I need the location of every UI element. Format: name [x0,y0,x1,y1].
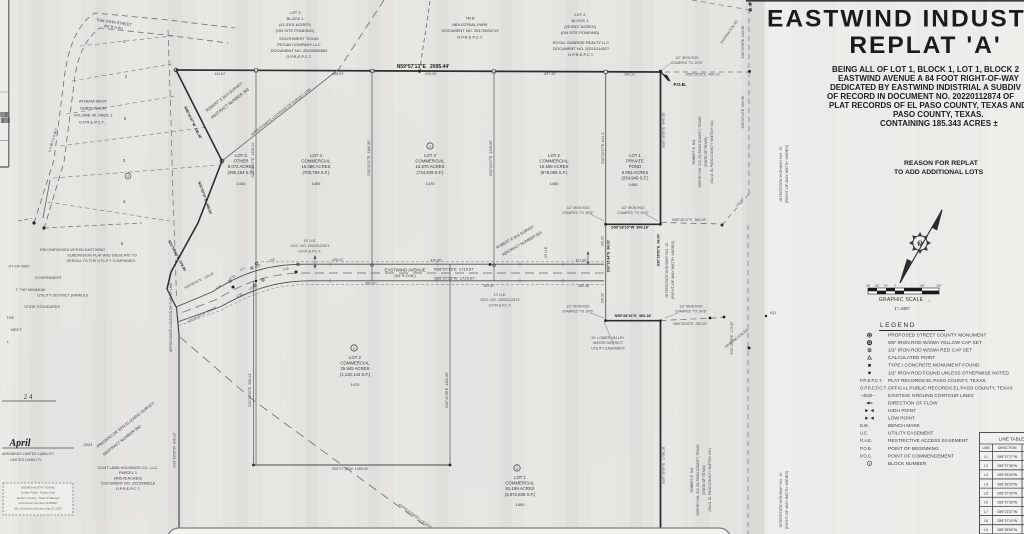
svg-text:LOT 3: LOT 3 [289,10,301,15]
svg-text:POINT OF COMMENCEMENT: POINT OF COMMENCEMENT [888,453,954,459]
svg-text:479.46': 479.46' [430,258,441,262]
svg-text:LOT 1: LOT 1 [514,475,526,480]
svg-text:SUBDIVISION: SUBDIVISION [80,106,106,111]
svg-text:S59°27'27"W: S59°27'27"W [997,455,1018,459]
svg-text:HT-OF-WAY.: HT-OF-WAY. [9,265,30,269]
svg-text:VOLUME 40, PAGE 1: VOLUME 40, PAGE 1 [74,113,114,118]
svg-text:100': 100' [919,284,925,288]
svg-text:REPLAT 'A': REPLAT 'A' [849,32,1001,59]
svg-text:(39.0007 ACRES): (39.0007 ACRES) [564,24,596,29]
svg-text:150': 150' [874,284,880,288]
svg-text:STAMPED "TX 1976": STAMPED "TX 1976" [671,61,703,65]
svg-text:STAMPED "TX 1976": STAMPED "TX 1976" [562,211,594,215]
svg-text:S30°31'44"E 84.00': S30°31'44"E 84.00' [607,240,611,273]
svg-text:952.91': 952.91' [483,284,494,288]
svg-text:(395,194 S.F.): (395,194 S.F.) [228,170,256,175]
svg-text:P.O.B.: P.O.B. [860,446,872,451]
svg-text:PASO COUNTY, TEXAS.: PASO COUNTY, TEXAS. [893,110,984,119]
svg-text:LINE: LINE [982,446,990,450]
svg-text:DOCUMENT NO. 20210114527: DOCUMENT NO. 20210114527 [553,46,610,51]
svg-text:S30°32'47"E 1245.85': S30°32'47"E 1245.85' [489,140,493,176]
svg-text:SUBDIVISION PLAT AND DEDICATE: SUBDIVISION PLAT AND DEDICATE TO [67,254,137,258]
svg-text:O.P.R.E.P.C.T.: O.P.R.E.P.C.T. [298,249,321,253]
svg-text:L6: L6 [984,501,988,505]
svg-text:LOT 2: LOT 2 [574,12,586,17]
svg-text:CONTAINING 185.343 ACRES ±: CONTAINING 185.343 ACRES ± [880,119,998,128]
svg-text:HEREAL TO THE UTILITY COMPANIE: HEREAL TO THE UTILITY COMPANIES [66,259,135,263]
svg-text:S30°32'47"E 844.2': S30°32'47"E 844.2' [601,132,605,164]
svg-text:BLOCK 1: BLOCK 1 [572,18,590,23]
svg-text:INDUSTRIAL PARK: INDUSTRIAL PARK [452,22,488,27]
svg-text:LOT 2: LOT 2 [548,153,560,158]
svg-text:1/2" IRON ROD: 1/2" IRON ROD [679,305,703,309]
svg-text:U.E.: U.E. [860,431,868,436]
svg-text:STAMPED "TX 1976": STAMPED "TX 1976" [617,211,649,215]
svg-text:1/2" IRON ROD: 1/2" IRON ROD [566,305,590,309]
svg-text:(734,949 S.F.): (734,949 S.F.) [417,170,445,175]
svg-text:S59°28'59"W: S59°28'59"W [997,528,1018,532]
svg-text:P.R.E.P.C.T.: P.R.E.P.C.T. [860,378,882,383]
svg-text:THE: THE [6,316,14,320]
svg-text:LOT 4: LOT 4 [310,153,322,158]
svg-text:INTERSTATE HIGHWAY NO. 10: INTERSTATE HIGHWAY NO. 10 [665,243,669,298]
svg-text:UTILITY EASEMENT: UTILITY EASEMENT [591,346,626,350]
svg-text:STATE STANDARDS: STATE STANDARDS [24,305,60,309]
svg-text:BENCH MARK: BENCH MARK [888,423,921,429]
svg-text:(679,088 S.F.): (679,088 S.F.) [541,170,569,175]
svg-text:N59°25'02"E 250.02': N59°25'02"E 250.02' [673,322,707,326]
svg-text:ATHENA WEST: ATHENA WEST [79,99,108,104]
svg-text:COMMERCIAL: COMMERCIAL [505,481,535,486]
svg-text:L1: L1 [984,455,988,459]
svg-text:GOVERNMENT: GOVERNMENT [35,276,63,280]
svg-text:N59°26'47"E 350.29': N59°26'47"E 350.29' [672,218,706,222]
svg-text:20' U.E.: 20' U.E. [544,246,548,259]
svg-text:LOW POINT: LOW POINT [888,416,915,422]
svg-text:UTILITY EASEMENT: UTILITY EASEMENT [888,431,934,437]
svg-text:91.199 ACRES: 91.199 ACRES [506,486,535,491]
svg-text:852.81': 852.81' [365,282,376,286]
svg-text:SURVEY NO. 302, EL PASO COUNTY: SURVEY NO. 302, EL PASO COUNTY, TEXAS [696,444,700,516]
svg-text:CALCULATED POINT: CALCULATED POINT [888,355,935,361]
svg-text:(3,972,639 S.F.): (3,972,639 S.F.) [505,492,536,497]
svg-text:(ON SITE PONDING): (ON SITE PONDING) [276,28,315,33]
svg-text:S30°32'47"E 1180.35': S30°32'47"E 1180.35' [367,140,371,176]
svg-text:ROBERT E. N/A: ROBERT E. N/A [690,467,694,492]
svg-text:INTERSTATE HIGHWAY NO. 10: INTERSTATE HIGHWAY NO. 10 [779,473,783,528]
svg-text:S30°19'05"E 243.38': S30°19'05"E 243.38' [741,25,745,58]
svg-text:L2: L2 [984,464,988,468]
svg-text:15.589 ACRES: 15.589 ACRES [540,164,569,169]
svg-text:PECAN COMPANY LLC: PECAN COMPANY LLC [277,42,320,47]
svg-text:ANDREA AUSTIN TOWNS: ANDREA AUSTIN TOWNS [21,486,55,490]
svg-text:My Commission Expires Aug 22,: My Commission Expires Aug 22, 2023 [14,506,62,510]
svg-text:421.46': 421.46' [575,258,586,262]
svg-text:S59°28'15"W 300.18': S59°28'15"W 300.18' [611,226,649,230]
svg-text:ENCOMPASSED WITHIN EASTWIND: ENCOMPASSED WITHIN EASTWIND [40,248,105,252]
svg-text:ROBERT E. N/A: ROBERT E. N/A [692,139,696,164]
svg-text:L5: L5 [984,492,988,496]
svg-text:GRAPHIC SCALE: GRAPHIC SCALE [879,297,924,303]
svg-text:INTERSTATE HIGHWAY NO. 10: INTERSTATE HIGHWAY NO. 10 [779,147,783,202]
svg-text:LOT 3: LOT 3 [424,153,436,158]
svg-text:O.P.R.E.P.C.T.: O.P.R.E.P.C.T. [457,34,483,39]
svg-text:PLAT RECORDS OF EL PASO COUNTY: PLAT RECORDS OF EL PASO COUNTY, TEXAS AN… [829,101,1024,110]
svg-text:(STATE OF TEXAS): (STATE OF TEXAS) [702,465,706,495]
svg-text:1/2" IRON ROD: 1/2" IRON ROD [675,56,699,60]
svg-text:MEET,: MEET, [11,328,22,332]
svg-text:N59°27'13"E 1715.07': N59°27'13"E 1715.07' [434,267,474,272]
svg-text:2 4: 2 4 [24,393,33,401]
svg-text:443.67': 443.67' [214,72,226,76]
svg-text:1455: 1455 [550,181,560,186]
svg-text:POND: POND [629,164,641,169]
svg-text:OTHER: OTHER [233,159,248,164]
svg-text:PARCEL 1: PARCEL 1 [119,471,137,475]
svg-text:(SLLO. EL PASO COUNTY SKETCH #: (SLLO. EL PASO COUNTY SKETCH #40) [710,120,714,183]
svg-text:O.P.R.E.P.C.T.: O.P.R.E.P.C.T. [488,303,511,307]
svg-text:1470: 1470 [351,382,361,387]
svg-text:1/2" IRON ROD W/2WA RED CAP SE: 1/2" IRON ROD W/2WA RED CAP SET [888,348,972,354]
svg-text:TR-B: TR-B [465,16,475,21]
svg-text:S59°37'50"W: S59°37'50"W [997,492,1018,496]
svg-text:627.46': 627.46' [544,72,556,76]
svg-text:1455: 1455 [237,181,247,186]
svg-text:STAMPED "TX 1976": STAMPED "TX 1976" [562,310,594,314]
svg-text:N59°28'16"E 300.18': N59°28'16"E 300.18' [615,314,652,318]
svg-text:16.870 ACRES: 16.870 ACRES [416,164,445,169]
svg-text:LEGEND: LEGEND [880,322,916,329]
svg-text:25.945 ACRES: 25.945 ACRES [341,366,370,371]
svg-text:UTILITY DISTRICT (HRWUD): UTILITY DISTRICT (HRWUD) [37,294,88,298]
svg-text:STAMPED "TX 1976": STAMPED "TX 1976" [675,310,707,314]
svg-text:T, THE MINIMUM: T, THE MINIMUM [15,288,45,292]
svg-text:L3: L3 [984,473,988,477]
svg-text:(41.5101 ACRES): (41.5101 ACRES) [279,22,311,27]
svg-text:TYPE I CONCRETE MONUMENT FOUND: TYPE I CONCRETE MONUMENT FOUND [888,363,980,369]
svg-text:--4020--: --4020-- [860,393,875,398]
svg-text:S59°27'13"W 1715.07': S59°27'13"W 1715.07' [434,275,475,280]
svg-text:1490: 1490 [516,502,526,507]
svg-text:16.086 ACRES: 16.086 ACRES [302,164,331,169]
svg-text:(RIGHT-OF-WAY WIDTH VARIES): (RIGHT-OF-WAY WIDTH VARIES) [785,470,789,529]
svg-text:OF RECORD IN DOCUMENT NO. 2022: OF RECORD IN DOCUMENT NO. 20220112874 OF [827,92,1014,101]
svg-text:TO ADD ADDITIONAL LOTS: TO ADD ADDITIONAL LOTS [894,169,984,176]
svg-text:1/2" IRON ROD FOUND UNLESS OTH: 1/2" IRON ROD FOUND UNLESS OTHERWISE NOT… [888,370,1010,376]
svg-text:S30°18'50"E 849.35': S30°18'50"E 849.35' [662,112,666,148]
svg-text:LINE TABLE: LINE TABLE [999,437,1024,442]
svg-text:O.P.R.E.P.C.T.: O.P.R.E.P.C.T. [116,487,140,491]
svg-text:R.A.E.: R.A.E. [860,438,872,443]
svg-text:L8: L8 [984,519,988,523]
svg-text:862.46': 862.46' [578,284,589,288]
svg-text:COMMERCIAL: COMMERCIAL [539,159,569,164]
svg-text:9.072 ACRES: 9.072 ACRES [228,164,255,169]
svg-text:APPROXIMATE LOCATION OF SURVEY: APPROXIMATE LOCATION OF SURVEY LINE [169,282,173,352]
svg-text:233.32': 233.32' [601,292,605,303]
svg-text:4: 4 [127,175,129,179]
svg-text:L4: L4 [984,482,988,486]
svg-text:EXISTING GROUND CONTOUR LINES: EXISTING GROUND CONTOUR LINES [888,393,974,399]
svg-text:645.00': 645.00' [332,72,344,76]
svg-text:EASTWIND AVENUE A 84 FOOT RIGH: EASTWIND AVENUE A 84 FOOT RIGHT-OF-WAY [838,74,1020,83]
svg-text:S59°27'10"W: S59°27'10"W [997,519,1018,523]
svg-text:2: 2 [353,347,355,351]
svg-text:1475: 1475 [426,181,436,186]
svg-text:O.P.R.E.P.C.T.: O.P.R.E.P.C.T. [286,54,312,59]
svg-text:DOCUMENT NO. 20170005719: DOCUMENT NO. 20170005719 [442,28,500,33]
svg-text:P.O.C.: P.O.C. [860,453,872,458]
svg-text:WATER DISTRICT: WATER DISTRICT [593,341,624,345]
svg-text:S59°28'09"W: S59°28'09"W [997,473,1018,477]
svg-text:PRIVATE: PRIVATE [626,159,644,164]
svg-text:P.O.B.: P.O.B. [674,82,687,87]
svg-text:L.: L. [7,340,10,344]
svg-text:(STATE OF TEXAS): (STATE OF TEXAS) [704,137,708,167]
svg-text:BLOCK 1: BLOCK 1 [287,16,305,21]
svg-text:10' U.E.: 10' U.E. [494,293,507,297]
svg-text:DEDICATED BY EASTWIND INDISTRI: DEDICATED BY EASTWIND INDISTRIAL A SUBDI… [830,83,1022,92]
svg-text:300.31': 300.31' [624,73,636,77]
svg-text:1/2" IRON ROD: 1/2" IRON ROD [566,206,590,210]
svg-text:50': 50' [884,284,888,288]
svg-text:(406.46 ACRES): (406.46 ACRES) [114,476,143,480]
svg-text:COMMERCIAL: COMMERCIAL [340,361,370,366]
svg-text:PLAT RECORDS EL PASO COUNTY, T: PLAT RECORDS EL PASO COUNTY, TEXAS [888,378,985,384]
svg-text:CLINT LAND HOLDINGS CO., LLC.: CLINT LAND HOLDINGS CO., LLC. [98,466,159,470]
svg-text:Commission Number 21485967: Commission Number 21485967 [18,501,58,505]
svg-text:Notary Public - Notary Seal: Notary Public - Notary Seal [21,491,55,495]
svg-text:N: N [918,242,922,248]
svg-text:DIRECTION: DIRECTION [998,446,1017,450]
svg-text:LOT 2: LOT 2 [349,355,361,360]
svg-text:BLOCK NUMBER: BLOCK NUMBER [888,461,927,467]
svg-text:DOCUMENT NO. 20200055854: DOCUMENT NO. 20200055854 [271,48,329,53]
svg-text:COMMERCIAL: COMMERCIAL [301,159,331,164]
svg-text:HIGH POINT: HIGH POINT [888,408,916,414]
svg-text:2: 2 [516,467,518,471]
svg-text:5.853 ACRES: 5.853 ACRES [622,170,649,175]
svg-text:S59°27'13"W 1085.00': S59°27'13"W 1085.00' [332,467,369,471]
svg-text:1"=200’: 1"=200’ [894,306,910,311]
svg-text:M§1: M§1 [770,311,776,315]
svg-text:DIRECTION OF FLOW: DIRECTION OF FLOW [888,400,938,406]
svg-text:EASTWIND AVENUE: EASTWIND AVENUE [385,268,426,273]
svg-text:20' LOWER VALLEY: 20' LOWER VALLEY [591,336,625,340]
svg-text:5/8" IRON ROD W/2WA YELLOW CAP: 5/8" IRON ROD W/2WA YELLOW CAP SET [888,340,982,346]
svg-text:POINT OF BEGINNING: POINT OF BEGINNING [888,446,939,452]
svg-text:233.32': 233.32' [601,235,605,246]
svg-text:O.P.R.E.P.C.T.: O.P.R.E.P.C.T. [860,385,887,390]
svg-text:200': 200' [936,284,942,288]
svg-text:408.41': 408.41' [332,258,343,262]
svg-text:1/2" IRON ROD: 1/2" IRON ROD [621,206,645,210]
svg-text:REASON FOR REPLAT: REASON FOR REPLAT [904,160,979,167]
svg-text:S30°18'50"E 598.42': S30°18'50"E 598.42' [248,373,252,407]
svg-text:(RIGHT-OF-WAY WIDTH VARIES): (RIGHT-OF-WAY WIDTH VARIES) [671,240,675,299]
svg-text:S59°27'38"W: S59°27'38"W [997,464,1018,468]
svg-text:SOUTHWEST TEXAS: SOUTHWEST TEXAS [279,36,319,41]
svg-text:1455: 1455 [312,181,322,186]
svg-text:S30°02'12"E 694.96': S30°02'12"E 694.96' [741,95,745,128]
svg-text:April: April [8,438,30,449]
svg-text:(700,769 S.F.): (700,769 S.F.) [303,170,331,175]
svg-text:N30°18'50"W 846.10': N30°18'50"W 846.10' [173,432,177,467]
svg-text:676.00': 676.00' [425,72,437,76]
svg-text:EASTWIND INDUSTRIAL: EASTWIND INDUSTRIAL [767,6,1024,33]
svg-text:O.P.R.E.P.C.T. .: O.P.R.E.P.C.T. . [79,120,107,125]
svg-text:ARKANSAS LIMITED LIABILITY: ARKANSAS LIMITED LIABILITY [2,452,55,456]
svg-text:(ON SITE PONDING): (ON SITE PONDING) [561,30,600,35]
svg-text:S59°23'37"W: S59°23'37"W [997,510,1018,514]
svg-text:S59°27'30"W: S59°27'30"W [997,501,1018,505]
svg-text:ROYAL SUNRISE REALTY LLC: ROYAL SUNRISE REALTY LLC [553,40,610,45]
svg-text:24.07': 24.07' [749,2,753,11]
svg-text:B.M.: B.M. [860,423,869,428]
svg-text:L7: L7 [984,510,988,514]
svg-text:LOT 5: LOT 5 [235,153,247,158]
svg-text:RESTRICTIVE ACCESS EASEMENT: RESTRICTIVE ACCESS EASEMENT [888,438,968,444]
svg-text:BEING ALL OF LOT 1, BLOCK 1, L: BEING ALL OF LOT 1, BLOCK 1, LOT 1, BLOC… [832,65,1020,74]
svg-text:DOC. NO. 20220112874: DOC. NO. 20220112874 [290,244,329,248]
svg-text:PROPOSED STREET COUNTY MONUMEN: PROPOSED STREET COUNTY MONUMENT [888,333,987,339]
svg-text:S30°18'50"E 1736.16': S30°18'50"E 1736.16' [662,446,666,484]
svg-text:(1,130,144 S.F.): (1,130,144 S.F.) [340,372,371,377]
svg-text:S59°28'23"W: S59°28'23"W [997,482,1018,486]
svg-text:100': 100' [865,284,871,288]
svg-text:O.P.R.E.P.C.T.: O.P.R.E.P.C.T. [568,52,594,57]
svg-text:S30°18'50"E 96.00': S30°18'50"E 96.00' [657,234,661,267]
svg-text:LOT 1: LOT 1 [629,153,641,158]
svg-text:(254,949 S.F.): (254,949 S.F.) [622,175,650,180]
svg-text:10' U.E.: 10' U.E. [304,239,317,243]
svg-text:2024: 2024 [84,442,94,447]
svg-text:L9: L9 [984,528,988,532]
svg-text:S30°41'05"E 1352.85': S30°41'05"E 1352.85' [445,372,449,408]
svg-text:(RIGHT-OF-WAY WIDTH VARIES): (RIGHT-OF-WAY WIDTH VARIES) [785,144,789,203]
svg-text:N59°57'13"E 2695.44': N59°57'13"E 2695.44' [397,64,450,70]
svg-text:Jackson County - State of Miss: Jackson County - State of Missouri [16,496,60,500]
svg-text:LIMITED LIABILITY: LIMITED LIABILITY [10,458,42,462]
svg-text:1: 1 [429,145,431,149]
svg-text:1495: 1495 [629,182,639,187]
svg-text:(84' R.O.W.): (84' R.O.W.) [394,273,416,278]
svg-text:N59°26'53"E 499.71': N59°26'53"E 499.71' [686,73,720,77]
svg-text:COMMERCIAL: COMMERCIAL [415,159,445,164]
svg-text:DOC. NO. 20220112874: DOC. NO. 20220112874 [480,298,519,302]
svg-text:SURVEY NO. 302, EL PASO COUNTY: SURVEY NO. 302, EL PASO COUNTY, TEXAS [698,116,702,188]
svg-text:(SLLO. EL PASO COUNTY SKETCH #: (SLLO. EL PASO COUNTY SKETCH #40) [708,448,712,511]
svg-text:DOCUMENT NO. 20210088118: DOCUMENT NO. 20210088118 [101,482,155,486]
svg-text:OFFICAL PUBLIC RECORDS EL PASO: OFFICAL PUBLIC RECORDS EL PASO COUNTY, T… [888,385,1013,391]
